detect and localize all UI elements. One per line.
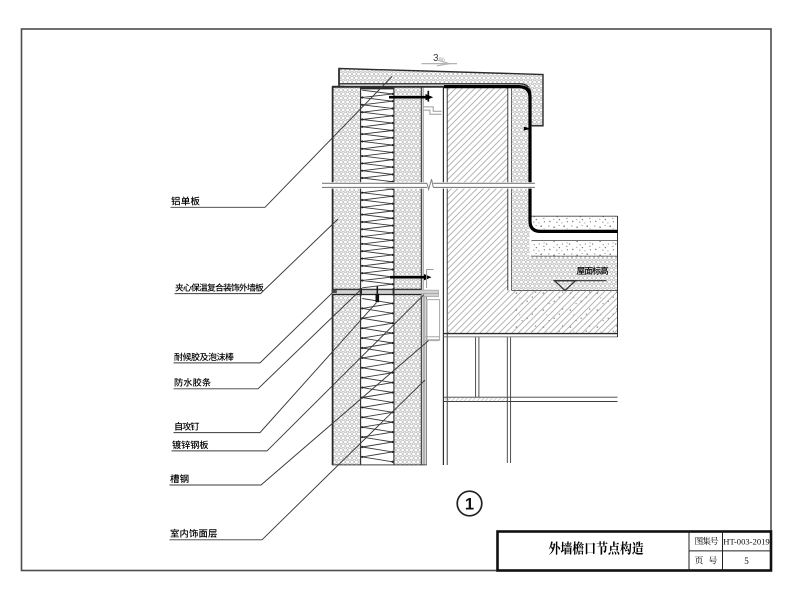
svg-text:5: 5 (744, 556, 749, 566)
svg-text:HT-003-2019: HT-003-2019 (723, 536, 769, 546)
svg-text:1: 1 (465, 496, 474, 514)
